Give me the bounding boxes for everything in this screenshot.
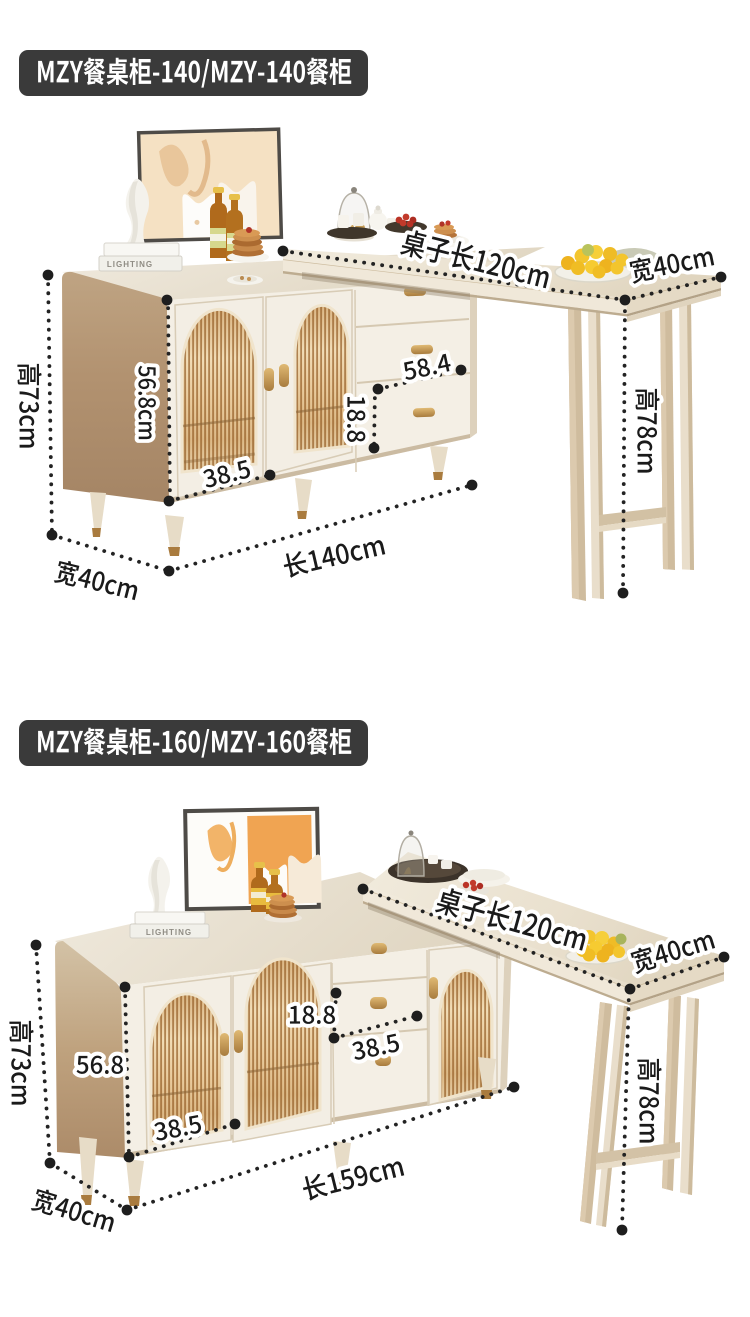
svg-text:LIGHTING: LIGHTING — [146, 928, 192, 937]
svg-text:LIGHTING: LIGHTING — [107, 260, 153, 269]
